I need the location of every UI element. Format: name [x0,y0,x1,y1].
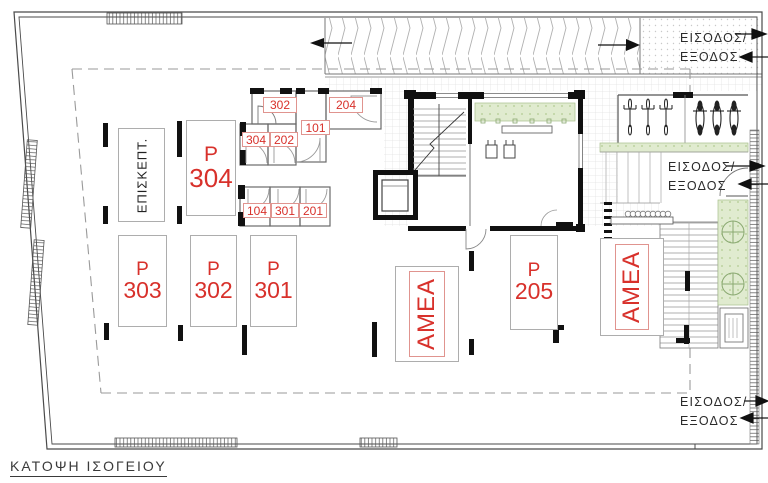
parking-space-amea-right: ΑΜΕΑ [600,238,664,336]
tree-icon [722,273,744,295]
parking-space-visitor: ΕΠΙΣΚΕΠΤ. [118,128,165,222]
drawing-title-wrap: ΚΑΤΟΨΗ ΙΣΟΓΕΙΟΥ [10,458,167,477]
storeroom-label-301: 301 [271,203,299,218]
planting-strip [600,143,748,152]
lobby-planter [475,103,575,121]
property-boundary [14,12,762,449]
door-arcs [246,96,377,210]
amea-left-label: ΑΜΕΑ [413,278,441,350]
storeroom-label-202: 202 [270,132,298,147]
p303-number: 303 [123,279,161,302]
storeroom-label-204: 204 [329,97,363,113]
stairs-icon [413,104,466,176]
tree-icon [722,221,744,243]
parking-space-p304: P 304 [186,120,236,216]
parking-space-p303: P 303 [118,235,167,327]
p302-number: 302 [194,279,232,302]
chair-icon [504,140,515,158]
entrance-label-mid-right: ΕΙΣΟΔΟΣ/ ΕΞΟΔΟΣ [668,158,736,197]
visitor-space-label: ΕΠΙΣΚΕΠΤ. [134,137,149,213]
entrance-line1: ΕΙΣΟΔΟΣ/ [680,29,748,48]
p205-number: 205 [515,280,553,303]
amea-right-label: ΑΜΕΑ [618,251,646,323]
utility-box [720,308,748,348]
parking-space-p302: P 302 [190,235,237,327]
storeroom-label-104: 104 [243,203,271,218]
storeroom-label-201: 201 [299,203,327,218]
drawing-title: ΚΑΤΟΨΗ ΙΣΟΓΕΙΟΥ [10,458,167,477]
storeroom-label-101: 101 [301,120,330,135]
entrance-label-bottom-right: ΕΙΣΟΔΟΣ/ ΕΞΟΔΟΣ [680,393,748,432]
entrance-label-top-right: ΕΙΣΟΔΟΣ/ ΕΞΟΔΟΣ [680,29,748,68]
parking-space-p301: P 301 [250,235,297,327]
lobby-door-arc [541,210,557,226]
entrance-line2: ΕΞΟΔΟΣ [680,412,748,431]
entrance-door-arc [466,229,486,249]
motorcycle-icon [693,101,741,135]
storeroom-label-304: 304 [242,132,270,147]
chair-icon [486,140,497,158]
floor-plan: ΕΠΙΣΚΕΠΤ. P 304 P 303 P 302 P 301 ΑΜΕΑ P [0,0,768,483]
bike-bay [618,92,748,143]
parking-space-p205: P 205 [510,235,558,330]
parking-space-amea-left: ΑΜΕΑ [395,266,459,362]
p304-letter: P [204,144,218,165]
garden-strip [718,200,748,305]
entrance-line1: ΕΙΣΟΔΟΣ/ [680,393,748,412]
bicycle-icon [624,99,672,135]
entrance-line2: ΕΞΟΔΟΣ [668,177,736,196]
entrance-line2: ΕΞΟΔΟΣ [680,48,748,67]
lobby-bench [502,126,552,133]
entrance-line1: ΕΙΣΟΔΟΣ/ [668,158,736,177]
p301-number: 301 [254,279,292,302]
p304-number: 304 [189,165,232,192]
storeroom-label-302: 302 [263,97,297,113]
